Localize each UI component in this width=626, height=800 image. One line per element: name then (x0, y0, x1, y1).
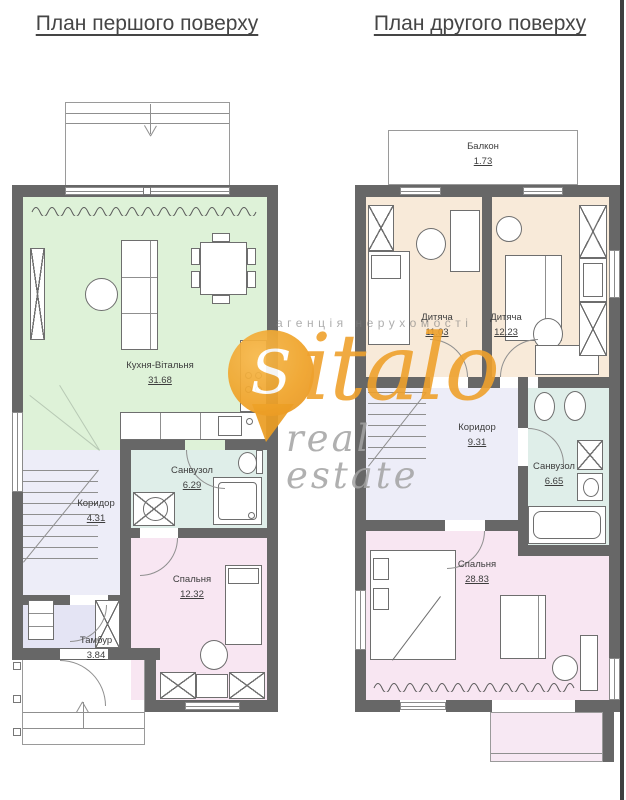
wall-corridor-bath-a (518, 377, 528, 428)
room-name: Коридор (458, 421, 496, 436)
shelf-inner (583, 263, 603, 297)
toilet-bowl (238, 452, 257, 474)
room-label-tambour: Тамбур 3.84 (80, 634, 112, 663)
wall-bottom-f2-a (355, 700, 400, 712)
washing-machine (133, 492, 175, 526)
sofa-back-line (538, 596, 539, 658)
bed-pillow (373, 558, 389, 580)
room-name: Кухня-Вітальня (126, 359, 193, 374)
wall-children-corridor-c (538, 377, 609, 388)
counter-divider (160, 413, 161, 439)
room-area: 1.73 (467, 155, 499, 170)
room-area: 11.03 (421, 326, 452, 341)
wall-corridor-bedroom-a (355, 520, 445, 531)
desk-chair (416, 228, 446, 260)
wall-corridor-vertical (120, 440, 131, 660)
room-area: 6.65 (533, 475, 575, 490)
shelf-line (29, 613, 53, 614)
sofa (500, 595, 546, 659)
balcony-bottom (490, 712, 603, 762)
room-area: 12.32 (173, 588, 211, 603)
chair (247, 271, 256, 288)
room-name: Санвузол (533, 460, 575, 475)
hall-shelf (28, 600, 54, 640)
chair (247, 248, 256, 265)
toilet-tank (256, 450, 263, 474)
porch-post (13, 695, 21, 703)
scan-edge-line (620, 0, 624, 800)
sofa-back-line (150, 241, 151, 349)
room-name: Санвузол (171, 464, 213, 479)
wall-children-divider (482, 197, 492, 385)
floorplan-page: План першого поверху План другого поверх… (0, 0, 626, 800)
bed-pillow (228, 568, 259, 584)
room-name: Спальня (173, 573, 211, 588)
balcony-wall-right (603, 712, 614, 762)
window-right-children (609, 250, 620, 298)
room-name: Спальня (458, 558, 496, 573)
wave-window-line-f2 (372, 680, 584, 692)
wardrobe-xbox (30, 248, 45, 340)
terrace-line (66, 123, 229, 124)
sofa (121, 240, 158, 350)
shelf-line (29, 626, 53, 627)
window-bottom-f1 (185, 702, 240, 710)
bathtub-inner (533, 511, 601, 539)
pouf (552, 655, 578, 681)
wardrobe-xbox (579, 302, 607, 356)
wall-bath-bedroom-a (120, 528, 140, 538)
floor2-title: План другого поверху (374, 12, 586, 36)
wall-corridor-bedroom-b (485, 520, 518, 531)
window-left-f1 (12, 412, 23, 492)
floor1-title: План першого поверху (36, 12, 259, 36)
wardrobe-xbox (160, 672, 196, 699)
balcony-door-left (400, 187, 441, 195)
dining-table (200, 242, 247, 295)
wall-corridor-bath-b (518, 466, 528, 556)
wall-right-f1 (267, 185, 278, 712)
bath-cabinet-xbox (577, 440, 603, 470)
sofa-cushion-line (122, 277, 157, 278)
toilet-bowl (564, 391, 586, 421)
wall-bath-bedroom-f2 (518, 545, 609, 556)
room-label-bathroom-f1: Санвузол 6.29 (171, 464, 213, 493)
terrace-arrow-shaft (150, 104, 151, 134)
chair (191, 248, 200, 265)
wall-bath-bedroom-b (178, 528, 267, 538)
stove-burner (245, 386, 252, 393)
wardrobe-xbox (368, 205, 394, 251)
room-name: Дитяча (421, 311, 452, 326)
porch-post (13, 728, 21, 736)
wall-bottom-f2-c (575, 700, 620, 712)
slider-center-mark (143, 187, 151, 195)
wall-top-f2 (355, 185, 620, 197)
room-area: 4.31 (77, 512, 115, 527)
room-label-bathroom-f2: Санвузол 6.65 (533, 460, 575, 489)
room-area: 28.83 (458, 573, 496, 588)
chair (212, 233, 230, 242)
chair (212, 295, 230, 304)
wall-children-corridor-a (366, 377, 430, 388)
stove-burner (255, 372, 262, 379)
window-left-bedroom (355, 590, 366, 650)
bidet (534, 392, 555, 421)
round-table (496, 216, 522, 242)
room-label-bedroom-f2: Спальня 28.83 (458, 558, 496, 587)
kitchen-sink (218, 416, 242, 436)
room-label-bedroom-f1: Спальня 12.32 (173, 573, 211, 602)
washing-machine (577, 473, 603, 501)
room-area: 12.23 (490, 326, 521, 341)
wall-step-f1 (145, 648, 156, 712)
room-label-children-2: Дитяча 12.23 (490, 311, 521, 340)
room-label-balcony: Балкон 1.73 (467, 140, 499, 169)
chair (191, 271, 200, 288)
stove-burner (245, 372, 252, 379)
bed-pillow (373, 588, 389, 610)
desk (450, 210, 480, 272)
room-label-children-1: Дитяча 11.03 (421, 311, 452, 340)
desk-chair (200, 640, 228, 670)
room-area: 9.31 (458, 436, 496, 451)
kitchen-counter (120, 412, 267, 440)
room-name: Дитяча (490, 311, 521, 326)
window-bottom-f2 (400, 702, 446, 710)
room-area: 6.29 (171, 479, 213, 494)
wall-bottom-f2-b (446, 700, 492, 712)
balcony-door-bedroom (609, 658, 620, 700)
coffee-table (85, 278, 118, 311)
stove-burner (255, 386, 262, 393)
wall-children-corridor-b (468, 377, 500, 388)
wave-window-line-f1 (30, 204, 266, 216)
room-name: Тамбур (80, 634, 112, 649)
sofa-cushion-line (122, 313, 157, 314)
desk (196, 674, 228, 698)
balcony-rail-line (491, 753, 602, 754)
room-label-corridor-f2: Коридор 9.31 (458, 421, 496, 450)
shower-drain (248, 512, 255, 519)
terrace-line (66, 113, 229, 114)
porch-step (23, 728, 144, 729)
room-name: Балкон (467, 140, 499, 155)
wardrobe-xbox (579, 205, 607, 258)
counter-divider (200, 413, 201, 439)
room-label-kitchen-living: Кухня-Вітальня 31.68 (126, 359, 193, 388)
room-area: 31.68 (126, 374, 193, 389)
wall-kitchen-bath-b (225, 440, 267, 450)
porch-post (13, 662, 21, 670)
wardrobe-xbox (229, 672, 265, 699)
balcony-door-right (523, 187, 563, 195)
room-label-corridor-f1: Коридор 4.31 (77, 497, 115, 526)
bed-pillow (371, 255, 401, 279)
terrace-outline (65, 102, 230, 186)
sink-faucet (246, 418, 253, 425)
room-area: 3.84 (80, 649, 112, 664)
room-name: Коридор (77, 497, 115, 512)
